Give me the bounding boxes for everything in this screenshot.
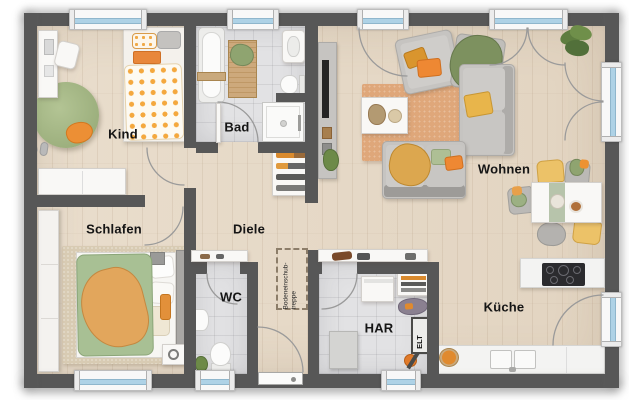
hallway-console — [191, 250, 248, 262]
attic-stairs-label-line1: Bodeneinschub- — [283, 262, 290, 309]
wall-diele-wohnen — [305, 153, 318, 203]
room-label-kueche: Küche — [484, 300, 525, 315]
wall-bad-stub — [276, 93, 305, 102]
window-kind — [69, 9, 147, 30]
wall-bad-south-left — [196, 142, 218, 153]
shower — [262, 102, 304, 142]
attic-stairs-label-line2: treppe — [291, 291, 298, 309]
wall-wc-east — [247, 262, 258, 374]
wall-bad-wohnen — [305, 26, 318, 153]
dresser — [38, 168, 126, 195]
window-har — [381, 370, 421, 391]
wc-washbasin — [195, 309, 209, 331]
room-label-diele: Diele — [233, 222, 265, 237]
cooktop — [542, 263, 585, 286]
wall-kind-schlafen — [37, 195, 145, 207]
sofa-bottom — [382, 141, 466, 199]
attic-stairs-outline: Bodeneinschub- treppe — [276, 248, 308, 310]
window-schlafen — [74, 370, 152, 391]
french-window-wohnen — [357, 9, 409, 30]
terrace-door — [601, 62, 622, 142]
room-label-har: HAR — [365, 321, 394, 336]
wc-toilet — [209, 342, 233, 372]
sink-2 — [514, 350, 536, 369]
hallway-bench-shoes — [318, 249, 428, 262]
room-label-wc: WC — [220, 290, 242, 305]
wire-shelf — [397, 272, 428, 296]
wardrobe — [38, 210, 59, 372]
wall-wc-north-left — [184, 262, 207, 274]
floor-plan: ELT Bodeneinschub- treppe — [0, 0, 629, 400]
dining-chair-yellow-1 — [536, 159, 565, 184]
sink — [490, 350, 512, 369]
wall-har-east — [427, 262, 439, 374]
french-window-wohnen-double — [489, 9, 568, 30]
room-label-wohnen: Wohnen — [478, 162, 530, 177]
room-label-bad: Bad — [224, 120, 249, 135]
faucet — [509, 367, 516, 372]
wall-kind-bad — [184, 26, 196, 148]
window-bad — [227, 9, 279, 30]
sofa-right — [459, 64, 515, 156]
wall-kind-schlafen-vertical — [184, 188, 196, 374]
freezer — [329, 331, 358, 369]
room-label-schlafen: Schlafen — [86, 222, 142, 237]
dining-chair-gray-3 — [536, 221, 566, 246]
wall-har-west — [308, 250, 319, 374]
bathtub — [198, 27, 225, 103]
child-bed — [123, 27, 185, 142]
kitchen-counter — [437, 345, 605, 374]
potted-plant-small — [323, 149, 339, 171]
bedroom-speaker — [162, 344, 185, 365]
washbasin — [282, 30, 305, 63]
kitchen-door — [601, 292, 622, 347]
bath-door-leaf — [216, 103, 221, 143]
room-label-kind: Kind — [108, 127, 138, 142]
kitchen-peninsula-counter — [520, 258, 605, 288]
electrical-panel-label: ELT — [415, 323, 425, 349]
palm-plant — [558, 24, 594, 62]
dining-chair-yellow-2 — [572, 219, 603, 245]
fruit-bowl — [439, 348, 459, 367]
outer-wall-left — [24, 13, 37, 388]
entrance-door-leaf — [258, 372, 303, 385]
dining-table — [531, 182, 602, 223]
coffee-table — [361, 97, 408, 134]
washing-machine — [361, 276, 394, 302]
window-wc — [195, 370, 235, 391]
